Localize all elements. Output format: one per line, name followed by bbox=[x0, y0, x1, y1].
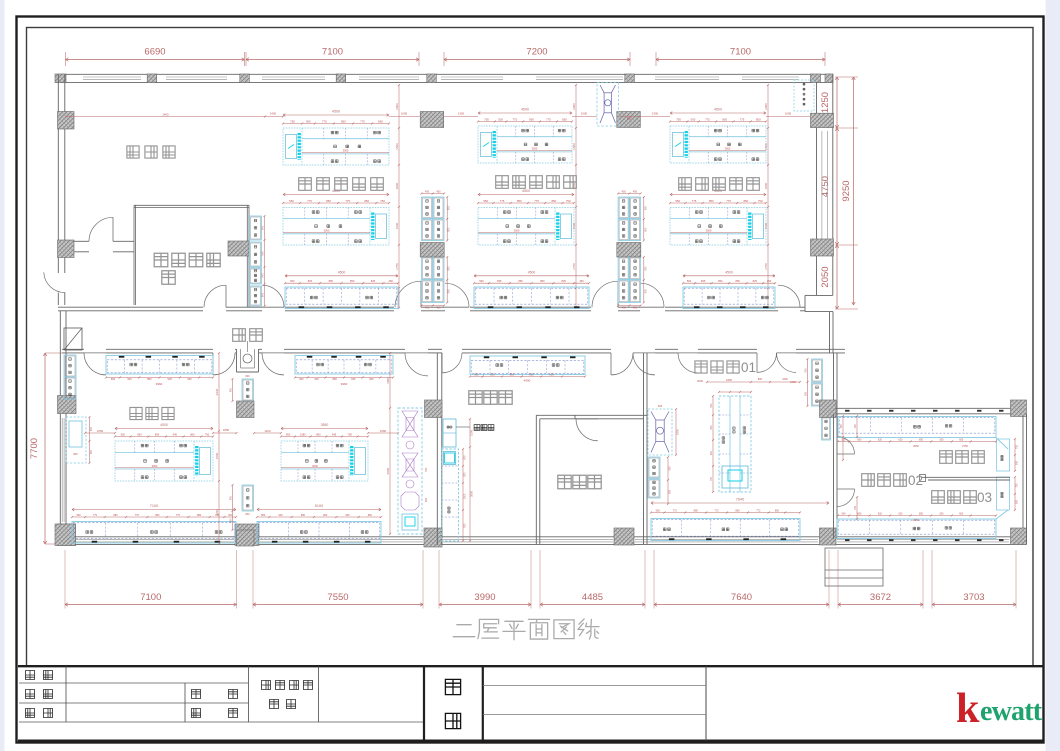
svg-text:925: 925 bbox=[127, 377, 132, 381]
svg-text:7550: 7550 bbox=[327, 592, 348, 603]
svg-text:2750: 2750 bbox=[962, 444, 968, 448]
svg-text:850: 850 bbox=[364, 199, 369, 203]
svg-text:775: 775 bbox=[740, 117, 745, 121]
svg-text:775: 775 bbox=[176, 514, 181, 517]
svg-text:825: 825 bbox=[562, 279, 567, 283]
svg-text:1000: 1000 bbox=[785, 112, 792, 116]
svg-text:850: 850 bbox=[147, 377, 152, 381]
svg-text:620: 620 bbox=[878, 438, 883, 441]
svg-text:750: 750 bbox=[676, 117, 681, 121]
svg-text:k: k bbox=[956, 686, 980, 732]
svg-text:850: 850 bbox=[562, 117, 567, 121]
svg-text:7100: 7100 bbox=[150, 504, 158, 508]
svg-text:850: 850 bbox=[743, 199, 748, 203]
svg-text:600: 600 bbox=[959, 438, 964, 441]
svg-text:900: 900 bbox=[260, 225, 264, 230]
svg-text:2400: 2400 bbox=[790, 380, 796, 384]
svg-text:825: 825 bbox=[308, 279, 313, 283]
svg-text:945: 945 bbox=[332, 432, 337, 436]
svg-text:500: 500 bbox=[940, 438, 945, 441]
svg-text:600: 600 bbox=[464, 455, 467, 460]
svg-text:450: 450 bbox=[622, 190, 627, 193]
svg-text:540: 540 bbox=[842, 512, 847, 515]
svg-text:900: 900 bbox=[644, 266, 647, 271]
svg-text:500: 500 bbox=[306, 119, 311, 123]
svg-text:850: 850 bbox=[709, 199, 714, 203]
svg-text:7640: 7640 bbox=[731, 592, 752, 603]
svg-text:900: 900 bbox=[229, 387, 232, 392]
svg-text:850: 850 bbox=[518, 279, 523, 283]
svg-text:775: 775 bbox=[546, 117, 551, 121]
svg-text:850: 850 bbox=[529, 117, 534, 121]
svg-text:1850: 1850 bbox=[223, 428, 230, 432]
svg-text:850: 850 bbox=[1016, 499, 1019, 504]
svg-text:850: 850 bbox=[517, 199, 522, 203]
svg-text:7700: 7700 bbox=[29, 438, 40, 459]
svg-text:880: 880 bbox=[694, 509, 699, 512]
svg-text:790: 790 bbox=[348, 432, 353, 436]
svg-text:880: 880 bbox=[735, 509, 740, 512]
svg-text:560: 560 bbox=[656, 509, 661, 512]
svg-text:4500: 4500 bbox=[528, 270, 536, 274]
svg-text:772: 772 bbox=[715, 509, 720, 512]
svg-text:3000: 3000 bbox=[725, 147, 731, 151]
svg-text:775: 775 bbox=[322, 119, 327, 123]
svg-text:1250: 1250 bbox=[820, 92, 831, 113]
svg-text:850: 850 bbox=[551, 199, 556, 203]
svg-text:850: 850 bbox=[341, 119, 346, 123]
svg-text:600: 600 bbox=[658, 404, 663, 408]
svg-text:850: 850 bbox=[350, 279, 355, 283]
svg-text:775: 775 bbox=[534, 199, 539, 203]
svg-text:880: 880 bbox=[113, 514, 118, 517]
svg-text:775: 775 bbox=[307, 199, 312, 203]
svg-text:2930: 2930 bbox=[215, 388, 219, 395]
svg-text:800: 800 bbox=[73, 452, 78, 456]
svg-text:620: 620 bbox=[878, 512, 883, 515]
svg-text:600: 600 bbox=[669, 489, 672, 494]
svg-text:2900: 2900 bbox=[572, 103, 576, 110]
svg-text:560: 560 bbox=[290, 279, 295, 283]
svg-text:750: 750 bbox=[566, 199, 571, 203]
svg-text:4500: 4500 bbox=[725, 270, 733, 274]
svg-text:3672: 3672 bbox=[870, 592, 891, 603]
svg-text:800: 800 bbox=[464, 523, 467, 528]
svg-text:900: 900 bbox=[710, 425, 713, 430]
svg-text:900: 900 bbox=[448, 205, 451, 210]
svg-text:600: 600 bbox=[245, 513, 250, 516]
svg-text:3000: 3000 bbox=[312, 464, 318, 468]
svg-text:1750: 1750 bbox=[395, 263, 399, 270]
svg-text:450: 450 bbox=[579, 279, 584, 283]
svg-text:1500: 1500 bbox=[395, 222, 399, 229]
svg-text:6690: 6690 bbox=[144, 47, 165, 58]
svg-text:2000: 2000 bbox=[697, 379, 703, 383]
svg-text:660: 660 bbox=[299, 377, 304, 381]
svg-text:680: 680 bbox=[857, 512, 862, 515]
svg-text:1250: 1250 bbox=[97, 429, 104, 433]
svg-text:750: 750 bbox=[758, 199, 763, 203]
svg-text:1000: 1000 bbox=[401, 112, 408, 116]
svg-text:450: 450 bbox=[622, 306, 627, 309]
svg-text:560: 560 bbox=[474, 372, 479, 376]
svg-text:3800: 3800 bbox=[764, 182, 768, 189]
svg-text:880: 880 bbox=[301, 514, 306, 517]
svg-text:775: 775 bbox=[135, 514, 140, 517]
svg-text:775: 775 bbox=[500, 199, 505, 203]
svg-text:925: 925 bbox=[279, 514, 284, 517]
svg-text:3800: 3800 bbox=[395, 182, 399, 189]
svg-text:7100: 7100 bbox=[322, 47, 343, 58]
svg-text:4500: 4500 bbox=[714, 108, 722, 112]
svg-text:925: 925 bbox=[345, 514, 350, 517]
svg-text:2050: 2050 bbox=[820, 266, 831, 287]
svg-text:450: 450 bbox=[436, 306, 441, 309]
svg-text:3000: 3000 bbox=[343, 149, 349, 153]
svg-text:1400: 1400 bbox=[162, 112, 169, 116]
svg-text:860: 860 bbox=[323, 514, 328, 517]
svg-text:ewatt: ewatt bbox=[980, 696, 1043, 727]
svg-text:680: 680 bbox=[857, 438, 862, 441]
svg-text:900: 900 bbox=[448, 289, 451, 294]
svg-text:500: 500 bbox=[424, 497, 428, 502]
svg-text:900: 900 bbox=[90, 426, 93, 431]
svg-text:500: 500 bbox=[710, 403, 713, 408]
svg-text:3000: 3000 bbox=[706, 229, 712, 233]
svg-text:860: 860 bbox=[368, 514, 373, 517]
svg-text:775: 775 bbox=[726, 199, 731, 203]
svg-text:550: 550 bbox=[289, 199, 294, 203]
svg-text:550: 550 bbox=[483, 199, 488, 203]
svg-text:3000: 3000 bbox=[324, 229, 330, 233]
svg-text:660: 660 bbox=[111, 377, 116, 381]
svg-text:860: 860 bbox=[316, 432, 321, 436]
svg-text:750: 750 bbox=[710, 476, 713, 481]
svg-text:850: 850 bbox=[378, 119, 383, 123]
svg-text:850: 850 bbox=[919, 512, 924, 515]
svg-text:560: 560 bbox=[77, 514, 82, 517]
svg-text:3960: 3960 bbox=[341, 382, 348, 386]
svg-text:850: 850 bbox=[736, 279, 741, 283]
svg-text:1300: 1300 bbox=[458, 112, 465, 116]
svg-text:450: 450 bbox=[389, 279, 394, 283]
svg-text:925: 925 bbox=[314, 377, 319, 381]
svg-text:750: 750 bbox=[290, 119, 295, 123]
svg-text:500: 500 bbox=[940, 512, 945, 515]
svg-text:450: 450 bbox=[633, 306, 638, 309]
svg-text:2650: 2650 bbox=[913, 444, 919, 448]
svg-text:600: 600 bbox=[669, 466, 672, 471]
svg-text:850: 850 bbox=[326, 199, 331, 203]
svg-text:800: 800 bbox=[627, 117, 632, 121]
svg-text:900: 900 bbox=[804, 391, 807, 396]
svg-text:1750: 1750 bbox=[764, 263, 768, 270]
svg-text:4500: 4500 bbox=[338, 270, 346, 274]
svg-text:900: 900 bbox=[644, 289, 647, 294]
svg-text:3000: 3000 bbox=[514, 229, 520, 233]
svg-text:800: 800 bbox=[260, 292, 264, 297]
svg-text:1080: 1080 bbox=[300, 432, 306, 436]
svg-text:925: 925 bbox=[168, 377, 173, 381]
svg-text:01: 01 bbox=[741, 360, 756, 375]
svg-text:850: 850 bbox=[756, 117, 761, 121]
svg-text:800: 800 bbox=[229, 518, 232, 523]
svg-text:02: 02 bbox=[908, 473, 923, 488]
svg-text:2900: 2900 bbox=[395, 103, 399, 110]
svg-text:560: 560 bbox=[687, 279, 692, 283]
svg-text:800: 800 bbox=[464, 472, 467, 477]
svg-text:860: 860 bbox=[261, 514, 266, 517]
svg-text:620: 620 bbox=[898, 512, 903, 515]
svg-text:3990: 3990 bbox=[474, 592, 495, 603]
svg-text:600: 600 bbox=[959, 512, 964, 515]
svg-text:880: 880 bbox=[197, 514, 202, 517]
svg-text:1500: 1500 bbox=[215, 452, 219, 459]
svg-text:950: 950 bbox=[121, 432, 126, 436]
svg-text:775: 775 bbox=[692, 199, 697, 203]
svg-text:4500: 4500 bbox=[332, 110, 340, 114]
svg-text:772: 772 bbox=[756, 509, 761, 512]
svg-text:450: 450 bbox=[633, 190, 638, 193]
svg-text:4485: 4485 bbox=[582, 592, 603, 603]
svg-text:825: 825 bbox=[753, 279, 758, 283]
svg-text:660: 660 bbox=[369, 377, 374, 381]
svg-text:825: 825 bbox=[549, 372, 554, 376]
svg-text:775: 775 bbox=[360, 119, 365, 123]
svg-text:900: 900 bbox=[448, 227, 451, 232]
svg-text:1100: 1100 bbox=[264, 429, 270, 433]
svg-text:800: 800 bbox=[758, 378, 763, 381]
svg-text:925: 925 bbox=[351, 377, 356, 381]
svg-text:900: 900 bbox=[644, 205, 647, 210]
svg-text:450: 450 bbox=[767, 279, 772, 283]
svg-text:620: 620 bbox=[898, 438, 903, 441]
svg-text:900: 900 bbox=[804, 368, 807, 373]
svg-text:3000: 3000 bbox=[532, 147, 538, 151]
svg-text:750: 750 bbox=[484, 117, 489, 121]
svg-text:700: 700 bbox=[854, 505, 857, 510]
svg-text:775: 775 bbox=[93, 514, 98, 517]
svg-text:700: 700 bbox=[854, 424, 857, 429]
svg-text:3400: 3400 bbox=[782, 378, 788, 381]
svg-text:1800: 1800 bbox=[676, 429, 680, 435]
svg-text:900: 900 bbox=[448, 266, 451, 271]
svg-text:750: 750 bbox=[840, 424, 843, 429]
svg-text:750: 750 bbox=[1016, 483, 1019, 488]
svg-text:450: 450 bbox=[436, 190, 441, 193]
svg-text:450: 450 bbox=[425, 306, 430, 309]
svg-text:2900: 2900 bbox=[764, 103, 768, 110]
svg-text:1500: 1500 bbox=[395, 143, 399, 150]
svg-text:850: 850 bbox=[333, 377, 338, 381]
svg-text:7100: 7100 bbox=[730, 47, 751, 58]
svg-text:600: 600 bbox=[245, 375, 250, 378]
svg-text:825: 825 bbox=[371, 279, 376, 283]
svg-text:1800: 1800 bbox=[726, 378, 732, 382]
svg-text:900: 900 bbox=[260, 251, 264, 256]
svg-text:1500: 1500 bbox=[464, 493, 467, 499]
svg-text:860: 860 bbox=[155, 432, 160, 436]
svg-text:850: 850 bbox=[919, 438, 924, 441]
svg-text:860: 860 bbox=[190, 432, 195, 436]
svg-text:850: 850 bbox=[775, 509, 780, 512]
svg-text:1300: 1300 bbox=[652, 112, 659, 116]
svg-text:4500: 4500 bbox=[714, 189, 722, 193]
svg-text:1000: 1000 bbox=[581, 112, 588, 116]
svg-text:850: 850 bbox=[155, 514, 160, 517]
svg-text:3000: 3000 bbox=[152, 464, 158, 468]
svg-text:3703: 3703 bbox=[963, 592, 984, 603]
svg-text:7640: 7640 bbox=[736, 498, 744, 502]
svg-text:3000: 3000 bbox=[470, 491, 474, 497]
svg-text:750: 750 bbox=[424, 467, 428, 472]
svg-text:5100: 5100 bbox=[315, 504, 323, 508]
svg-text:550: 550 bbox=[675, 199, 680, 203]
svg-text:450: 450 bbox=[425, 190, 430, 193]
svg-text:775: 775 bbox=[512, 117, 517, 121]
svg-text:900: 900 bbox=[260, 273, 264, 278]
svg-text:900: 900 bbox=[229, 495, 232, 500]
svg-text:750: 750 bbox=[1016, 444, 1019, 449]
svg-text:825: 825 bbox=[490, 372, 495, 376]
svg-text:9250: 9250 bbox=[841, 180, 852, 201]
svg-text:945: 945 bbox=[173, 432, 178, 436]
svg-text:3550: 3550 bbox=[321, 423, 329, 427]
svg-text:850: 850 bbox=[329, 279, 334, 283]
svg-text:5000: 5000 bbox=[386, 467, 390, 474]
svg-text:1500: 1500 bbox=[470, 430, 474, 436]
svg-text:775: 775 bbox=[705, 117, 710, 121]
svg-text:4500: 4500 bbox=[332, 189, 340, 193]
svg-text:500: 500 bbox=[691, 117, 696, 121]
svg-text:850: 850 bbox=[718, 279, 723, 283]
svg-text:560: 560 bbox=[479, 279, 484, 283]
svg-text:1500: 1500 bbox=[572, 143, 576, 150]
svg-text:2260: 2260 bbox=[215, 509, 219, 516]
svg-text:500: 500 bbox=[498, 117, 503, 121]
svg-text:750: 750 bbox=[380, 199, 385, 203]
svg-text:850: 850 bbox=[1016, 460, 1019, 465]
svg-text:4500: 4500 bbox=[521, 108, 529, 112]
svg-text:850: 850 bbox=[540, 279, 545, 283]
svg-text:7100: 7100 bbox=[140, 592, 161, 603]
svg-text:4590: 4590 bbox=[524, 379, 531, 383]
svg-text:850: 850 bbox=[529, 372, 534, 376]
svg-text:2650: 2650 bbox=[913, 518, 919, 522]
svg-text:4000: 4000 bbox=[160, 423, 168, 427]
svg-text:1400: 1400 bbox=[270, 112, 277, 116]
svg-text:775: 775 bbox=[345, 199, 350, 203]
svg-text:3960: 3960 bbox=[156, 382, 163, 386]
svg-text:790: 790 bbox=[205, 432, 210, 436]
svg-text:825: 825 bbox=[497, 279, 502, 283]
svg-text:1750: 1750 bbox=[572, 263, 576, 270]
svg-text:950: 950 bbox=[286, 432, 291, 436]
svg-text:850: 850 bbox=[722, 117, 727, 121]
svg-text:03: 03 bbox=[977, 490, 992, 505]
svg-text:900: 900 bbox=[710, 450, 713, 455]
svg-text:900: 900 bbox=[644, 227, 647, 232]
svg-text:860: 860 bbox=[137, 432, 142, 436]
svg-text:900: 900 bbox=[90, 449, 93, 454]
svg-text:850: 850 bbox=[510, 372, 515, 376]
svg-text:772: 772 bbox=[673, 509, 678, 512]
svg-text:4500: 4500 bbox=[522, 189, 530, 193]
svg-text:825: 825 bbox=[701, 279, 706, 283]
svg-text:1080: 1080 bbox=[380, 429, 387, 433]
svg-text:660: 660 bbox=[187, 377, 192, 381]
svg-text:7200: 7200 bbox=[526, 47, 547, 58]
svg-text:550: 550 bbox=[842, 438, 847, 441]
svg-text:3800: 3800 bbox=[386, 377, 390, 384]
